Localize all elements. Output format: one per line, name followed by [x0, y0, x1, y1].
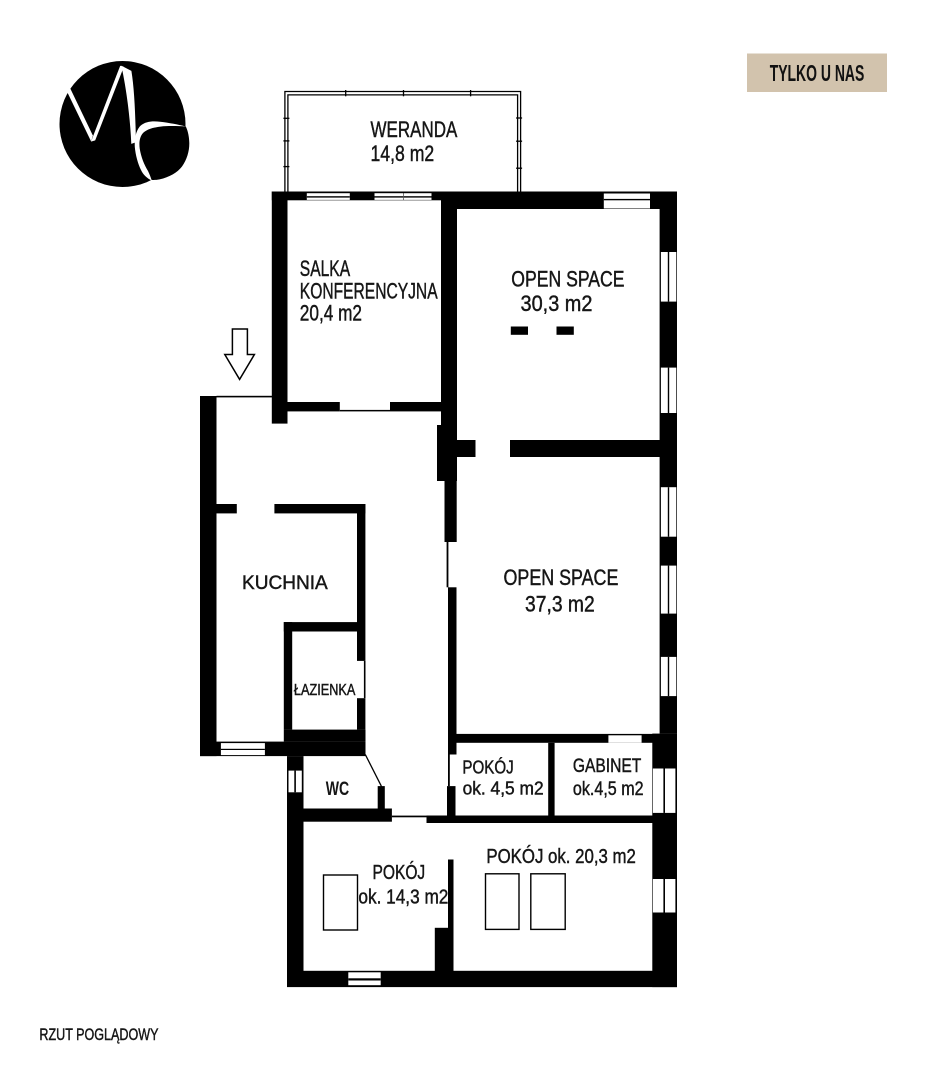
- svg-text:30,3 m2: 30,3 m2: [521, 291, 593, 316]
- svg-text:KUCHNIA: KUCHNIA: [242, 572, 328, 594]
- svg-text:KONFERENCYJNA: KONFERENCYJNA: [300, 278, 438, 303]
- svg-text:TYLKO U NAS: TYLKO U NAS: [770, 60, 865, 86]
- svg-text:ok. 4,5 m2: ok. 4,5 m2: [463, 779, 544, 799]
- svg-text:14,8 m2: 14,8 m2: [371, 141, 435, 166]
- svg-text:RZUT POGLĄDOWY: RZUT POGLĄDOWY: [39, 1025, 158, 1044]
- svg-text:ok.4,5 m2: ok.4,5 m2: [573, 779, 644, 800]
- svg-text:37,3 m2: 37,3 m2: [525, 592, 595, 617]
- svg-text:ok. 14,3 m2: ok. 14,3 m2: [358, 886, 448, 909]
- svg-text:ŁAZIENKA: ŁAZIENKA: [294, 682, 356, 699]
- svg-text:GABINET: GABINET: [573, 756, 642, 777]
- svg-text:WERANDA: WERANDA: [371, 117, 458, 142]
- svg-text:20,4 m2: 20,4 m2: [300, 301, 362, 326]
- svg-text:POKÓJ ok. 20,3 m2: POKÓJ ok. 20,3 m2: [486, 845, 636, 868]
- svg-text:POKÓJ: POKÓJ: [462, 757, 513, 778]
- svg-text:WC: WC: [326, 778, 349, 800]
- svg-text:OPEN SPACE: OPEN SPACE: [504, 565, 619, 590]
- svg-text:POKÓJ: POKÓJ: [373, 861, 426, 884]
- svg-text:OPEN SPACE: OPEN SPACE: [511, 266, 624, 291]
